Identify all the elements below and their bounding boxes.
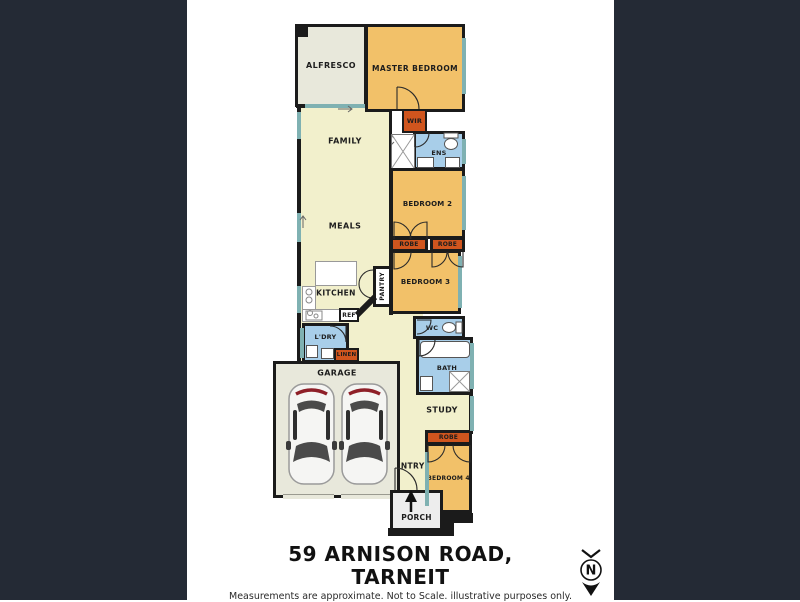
title-block: 59 ARNISON ROAD, TARNEIT Measurements ar… — [187, 543, 614, 602]
cooktop-burners — [306, 289, 322, 320]
toilet-icon — [443, 133, 463, 333]
car-icon — [339, 384, 390, 484]
address-line1: 59 ARNISON ROAD, — [187, 543, 614, 566]
disclaimer-text: Measurements are approximate. Not to Sca… — [187, 591, 614, 602]
address-line2: TARNEIT — [187, 566, 614, 589]
entry-arrow-icon — [405, 490, 417, 512]
page-background: ALFRESCO MASTER BEDROOM WIR ENS BEDROOM … — [0, 0, 800, 600]
door-arcs-overlay — [0, 0, 800, 600]
car-icon — [286, 384, 337, 484]
diagonal-wall — [357, 297, 375, 315]
